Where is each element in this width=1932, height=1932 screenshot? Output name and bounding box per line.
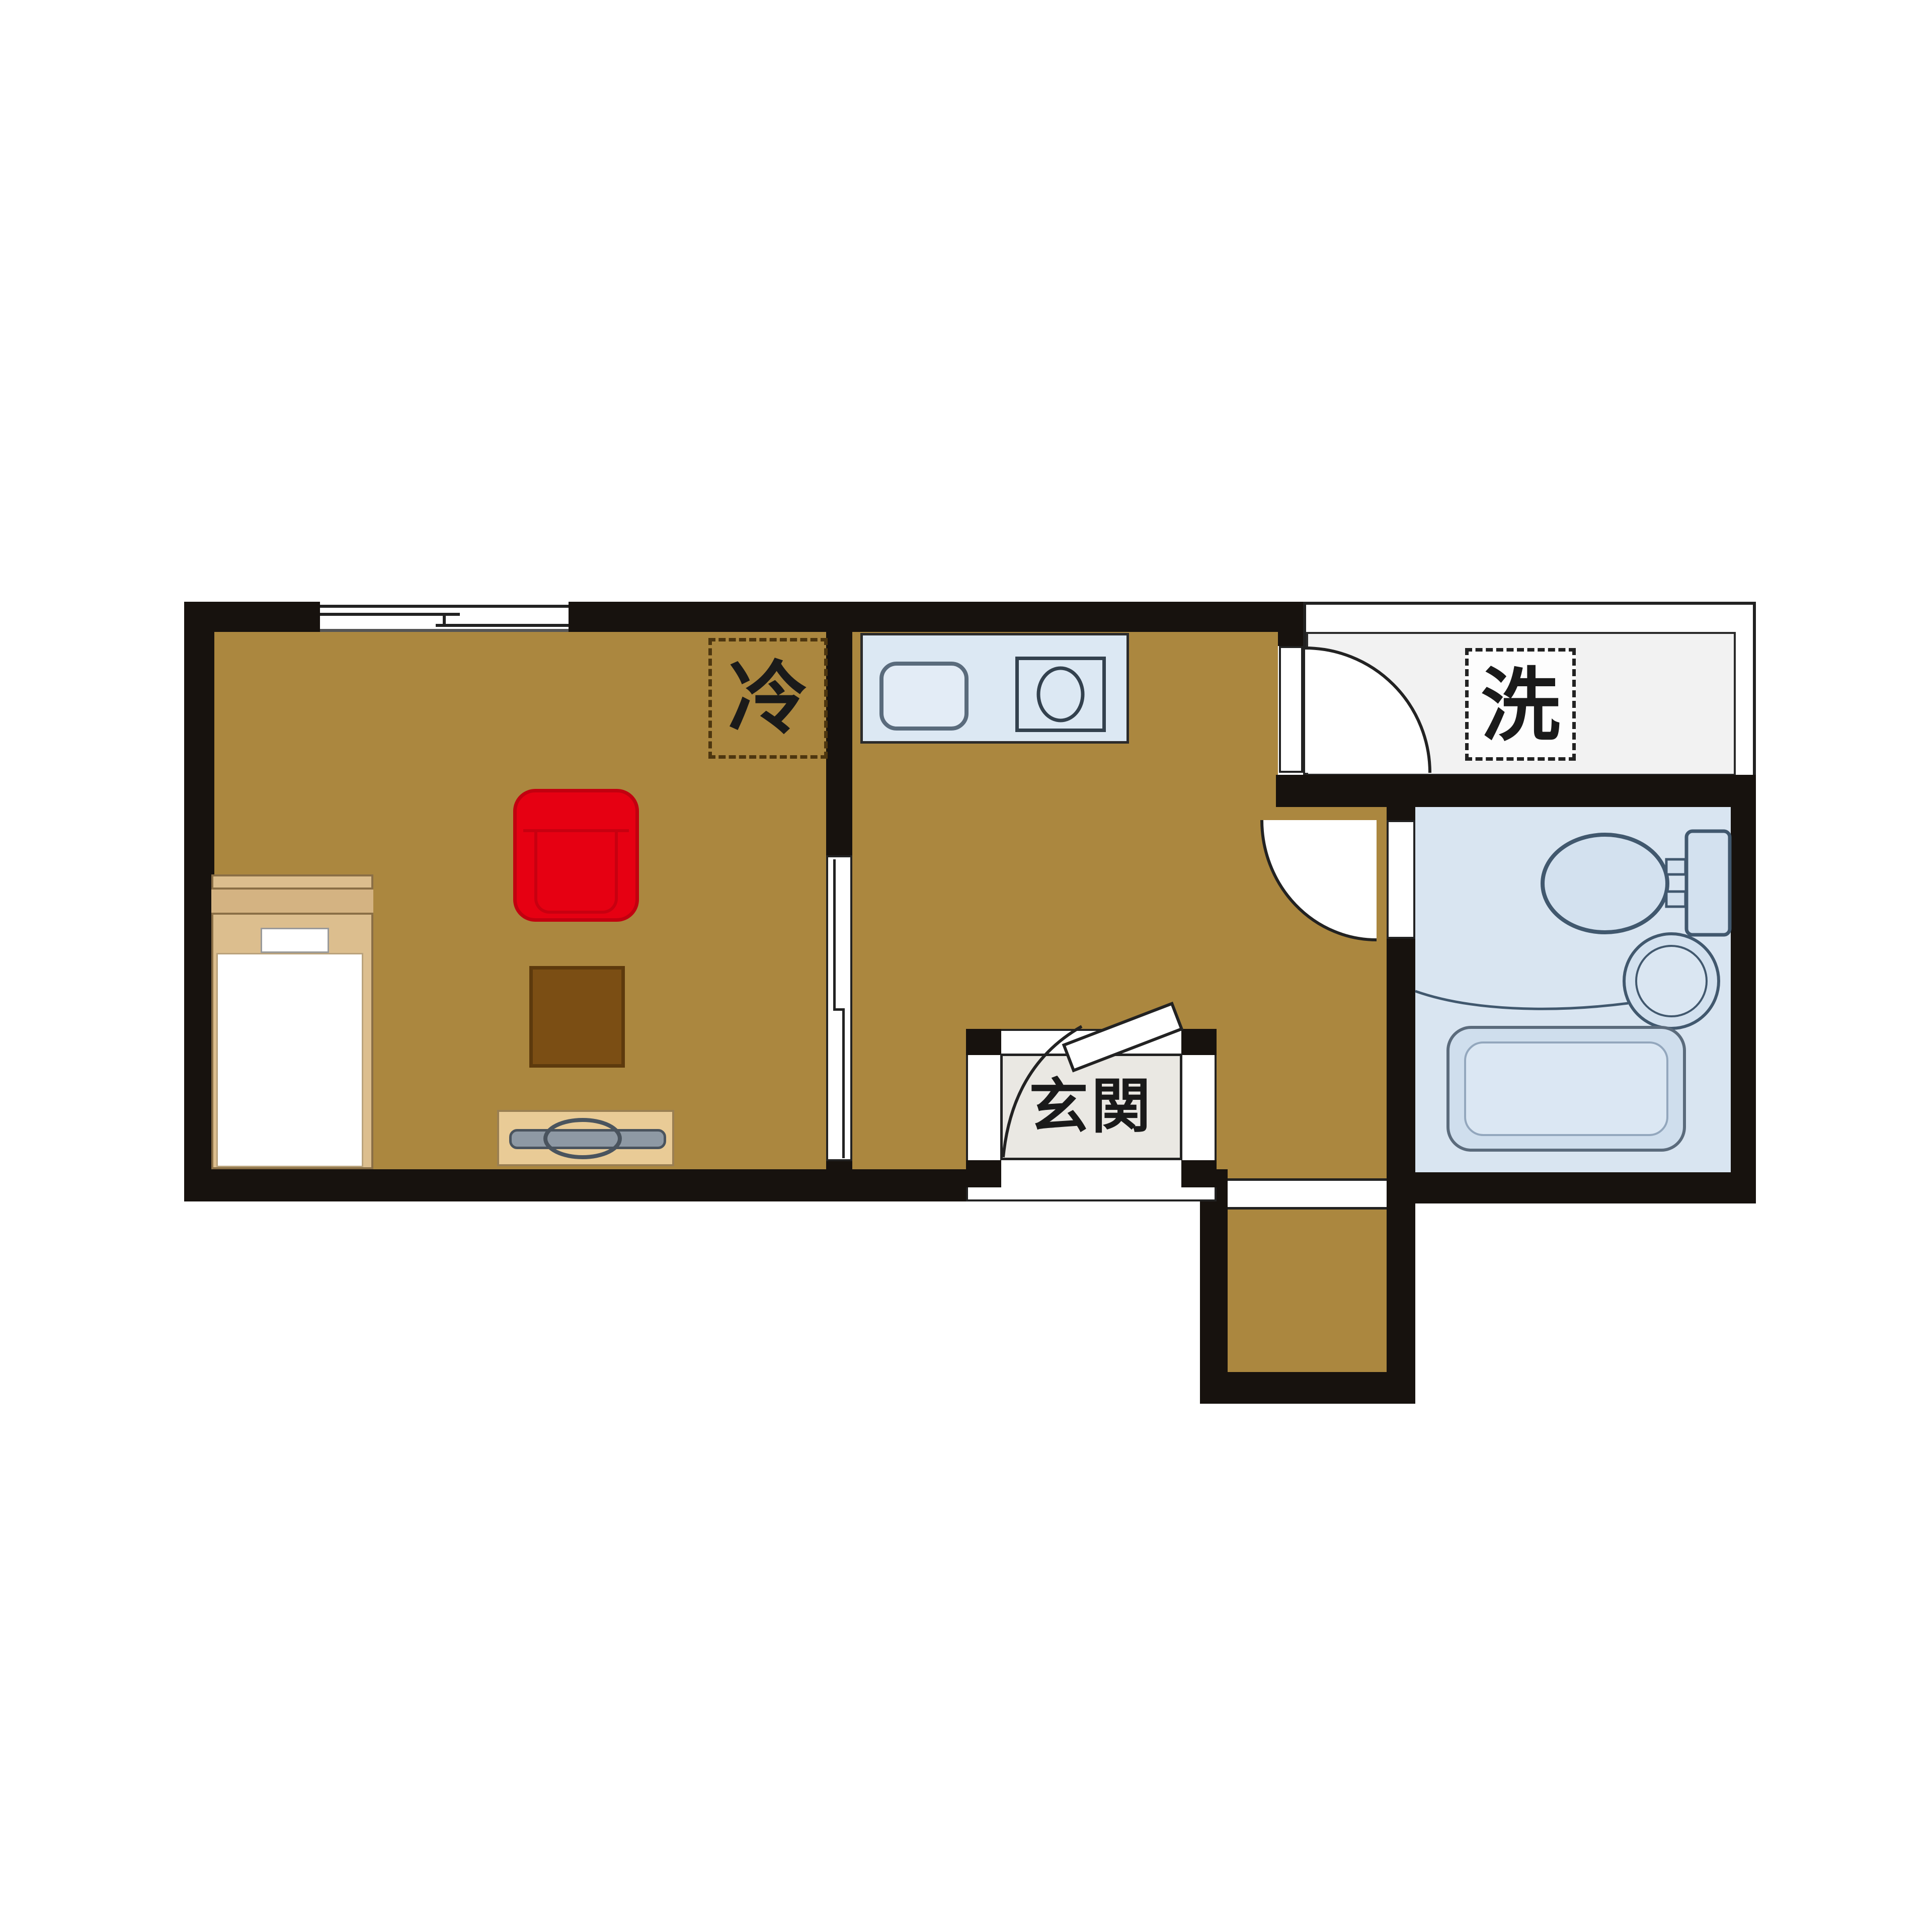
wall-room-divider-top xyxy=(826,632,852,855)
genkan-label: 玄関 xyxy=(1000,1077,1182,1136)
wall-kitchen-right xyxy=(1278,632,1303,646)
wall-bathroom-left-upper xyxy=(1387,807,1415,820)
sliding-door-line-bottom xyxy=(842,1008,845,1158)
wall-bathroom-bottom xyxy=(1387,1172,1756,1203)
sliding-door-tick xyxy=(833,1008,845,1011)
window-pane-line-left xyxy=(320,613,460,616)
wall-room-divider-stub xyxy=(826,1161,852,1169)
wall-bathroom-left-lower xyxy=(1387,939,1415,1404)
entrance-porch-floor xyxy=(1228,1210,1387,1372)
washer-label: 洗 xyxy=(1465,666,1576,746)
kitchen-hall-floor xyxy=(1278,807,1387,1178)
refrigerator-label: 冷 xyxy=(708,659,828,739)
wall-porch-bottom xyxy=(1200,1372,1415,1404)
kitchen-stove xyxy=(1015,657,1106,732)
low-table xyxy=(529,966,625,1068)
genkan-post-top-right xyxy=(1181,1029,1217,1055)
bed-mattress xyxy=(216,953,363,1167)
laundry-door-leaf xyxy=(1279,646,1303,773)
genkan-post-top-left xyxy=(966,1029,1001,1055)
bathroom-door-leaf xyxy=(1387,820,1415,939)
bed-headboard xyxy=(211,888,373,915)
wall-bathroom-right xyxy=(1731,775,1756,1203)
window-pane-tick xyxy=(443,613,446,627)
genkan-post-bottom-left xyxy=(966,1160,1001,1187)
sliding-door-line-top xyxy=(833,859,836,1010)
kitchen-sink xyxy=(879,662,969,731)
wall-top-main xyxy=(569,602,1303,632)
genkan-post-bottom-right xyxy=(1181,1160,1217,1187)
bathroom-floor xyxy=(1415,807,1731,1172)
floor-plan: 玄関 冷 洗 xyxy=(0,0,1932,1932)
porch-step xyxy=(1228,1178,1387,1210)
wall-left xyxy=(184,602,214,1201)
wall-hallway-bottom xyxy=(1276,775,1756,807)
step-top-floor xyxy=(1228,1169,1278,1178)
wall-porch-left xyxy=(1200,1169,1228,1404)
armchair-seat xyxy=(534,829,618,914)
window-pane-line-right xyxy=(436,624,569,627)
wall-bottom xyxy=(184,1169,966,1201)
bed-pillow xyxy=(261,928,329,953)
tv xyxy=(509,1129,666,1149)
